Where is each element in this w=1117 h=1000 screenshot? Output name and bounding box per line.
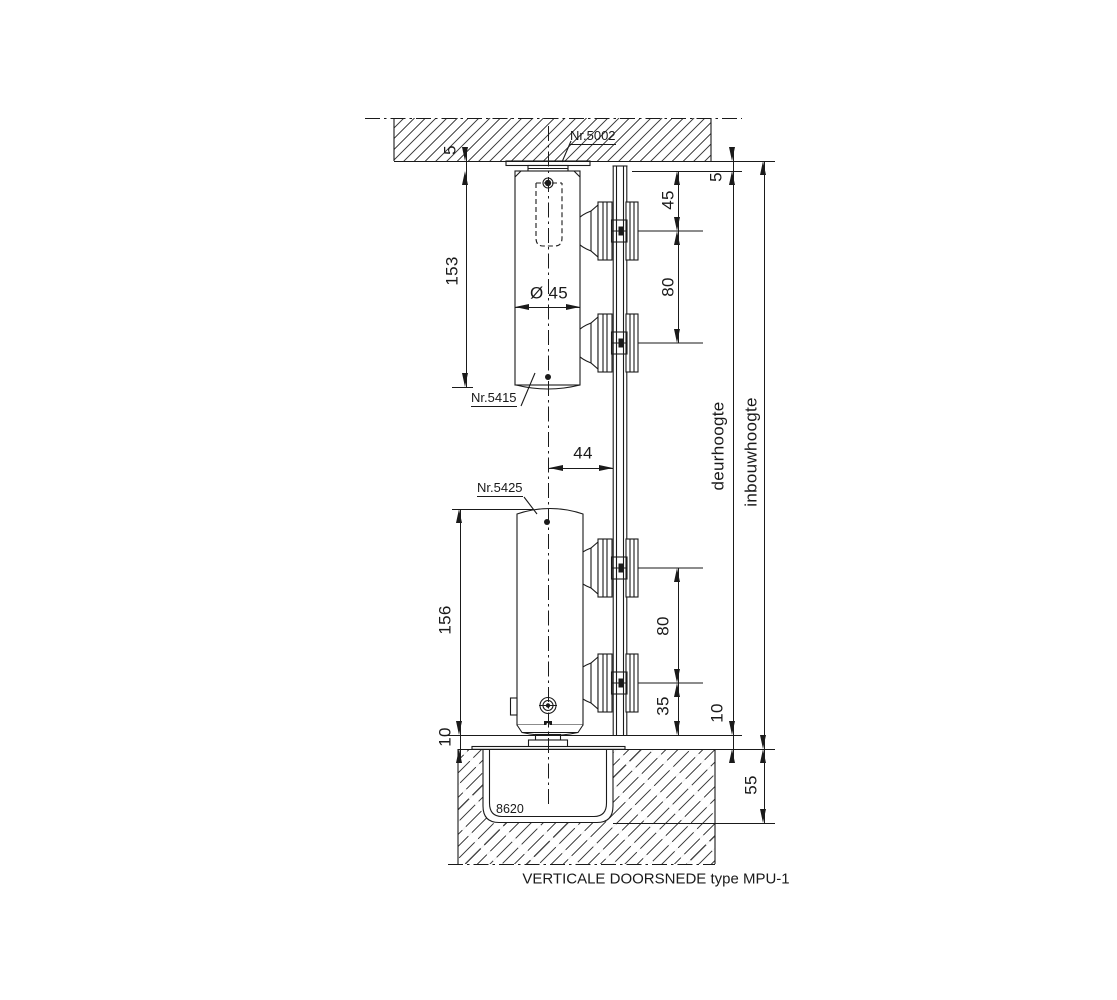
arrow: [674, 217, 680, 231]
arrow: [515, 304, 529, 310]
label-door-height: deurhoogte: [710, 401, 727, 490]
drawing-title: VERTICALE DOORSNEDE type MPU-1: [522, 871, 789, 888]
arrow: [674, 568, 680, 582]
door-top-ext-line: [632, 171, 742, 172]
dim-top-fitting-offset: 45: [660, 190, 677, 210]
arrow: [674, 171, 680, 185]
dim-floor-clearance-left: 10: [437, 727, 454, 747]
ceiling-centerline: [365, 118, 742, 119]
door-fitting-1: [573, 202, 703, 260]
floor-surface-line: [458, 749, 775, 750]
label-upper-door-pivot: Nr.5415: [471, 391, 517, 407]
label-installation-height: inbouwhoogte: [743, 397, 760, 506]
dim-line-right-chain-upper: [678, 171, 679, 343]
arrow: [462, 373, 468, 387]
floor-bottom-centerline: [448, 864, 715, 865]
door-fitting-3: [573, 539, 703, 597]
arrow: [674, 721, 680, 735]
dim-fitting-spacing-upper: 80: [660, 277, 677, 297]
arrow: [729, 721, 735, 735]
ceiling-underside-line: [394, 161, 775, 162]
arrow: [566, 304, 580, 310]
arrow: [674, 669, 680, 683]
arrow: [729, 749, 735, 763]
dim-center-to-door: 44: [573, 445, 593, 462]
arrow: [456, 721, 462, 735]
dim-line-deurhoogte: [733, 147, 734, 763]
arrow: [729, 171, 735, 185]
arrow: [729, 147, 735, 161]
arrow: [456, 509, 462, 523]
arrow: [760, 735, 766, 749]
technical-drawing-canvas: 5 153 Ø 45 44 156 10 45 80 5 80 35 10 55…: [0, 0, 1117, 1000]
upper-pivot-bottom-ext: [452, 387, 473, 388]
dim-upper-pivot-length: 153: [444, 256, 461, 285]
arrow: [599, 465, 613, 471]
dim-floor-clearance-right: 10: [709, 703, 726, 723]
box-bottom-ext-line: [613, 823, 775, 824]
dim-floor-box-depth: 55: [743, 775, 760, 795]
arrow: [674, 329, 680, 343]
arrow: [549, 465, 563, 471]
parts-layer: [0, 0, 1117, 1000]
label-floor-box: 8620: [496, 803, 524, 818]
dim-lower-pivot-length: 156: [437, 605, 454, 634]
dim-door-top-gap: 5: [708, 172, 725, 182]
label-top-pivot-plate: Nr.5002: [570, 129, 616, 145]
arrow: [456, 749, 462, 763]
door-fitting-4: [573, 654, 703, 712]
arrow: [462, 147, 468, 161]
dim-ceiling-plate-thickness: 5: [442, 145, 459, 155]
lower-pivot-top-ext: [452, 509, 533, 510]
arrow: [462, 171, 468, 185]
dim-fitting-spacing-lower: 80: [655, 616, 672, 636]
dim-line-inbouwhoogte: [764, 161, 765, 823]
arrow: [760, 749, 766, 763]
arrow: [674, 231, 680, 245]
door-leaf: [613, 166, 628, 735]
dim-cylinder-diameter: Ø 45: [530, 285, 568, 302]
door-fitting-2: [573, 314, 703, 372]
label-lower-door-pivot: Nr.5425: [477, 481, 523, 497]
arrow: [760, 161, 766, 175]
door-bottom-line: [445, 735, 742, 736]
arrow: [674, 683, 680, 697]
arrow: [760, 809, 766, 823]
dim-bottom-fitting-offset: 35: [655, 696, 672, 716]
dim-line-right-chain-lower: [678, 568, 679, 735]
